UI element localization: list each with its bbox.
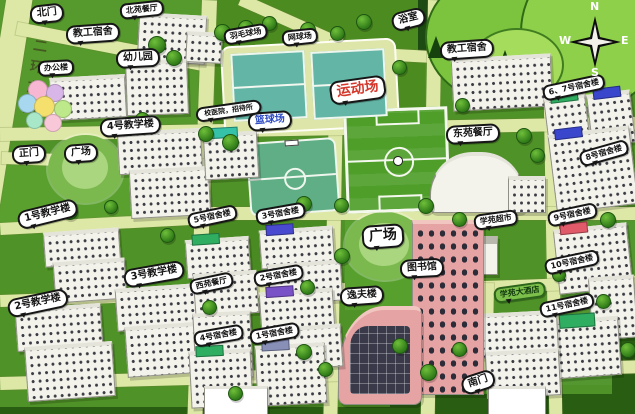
tree-icon [620, 342, 635, 358]
compass-icon: N W E S [563, 4, 627, 80]
tree-icon [300, 280, 315, 295]
label-plaza-left: 广场 [63, 143, 98, 164]
tree-icon [330, 26, 345, 41]
tree-icon [228, 386, 243, 401]
label-library: 图书馆 [400, 258, 445, 279]
tree-icon [418, 198, 434, 214]
compass-s: S [591, 66, 599, 79]
label-staff-dorm-left: 教工宿舍 [65, 22, 120, 44]
label-staff-dorm-right: 教工宿舍 [439, 38, 494, 60]
tree-icon [318, 362, 333, 377]
label-east-canteen: 东苑餐厅 [446, 123, 501, 144]
compass-n: N [590, 0, 599, 13]
compass-e: E [621, 34, 629, 47]
tree-icon [334, 198, 349, 213]
label-north-gate: 北门 [29, 2, 65, 24]
tree-icon [516, 128, 532, 144]
label-kindergarten: 幼儿园 [116, 48, 161, 69]
label-main-gate: 正门 [11, 144, 46, 165]
building-dorm-8 [547, 125, 635, 213]
building-teach-2 [24, 341, 116, 402]
tree-icon [334, 248, 350, 264]
tree-icon [356, 14, 372, 30]
tree-icon [392, 338, 408, 354]
tree-icon [455, 98, 470, 113]
label-plaza-center: 广场 [361, 223, 405, 249]
tree-icon [160, 228, 175, 243]
campus-map: 二环东路 N W E S [0, 0, 635, 414]
tree-icon [420, 364, 437, 381]
tree-icon [166, 50, 182, 66]
balloons-icon [18, 80, 72, 144]
building-east-canteen-annex [508, 176, 546, 213]
tree-icon [198, 126, 214, 142]
label-yifu-building: 逸夫楼 [339, 285, 384, 307]
building-yifu-glass [350, 326, 410, 394]
label-office-building: 办公楼 [38, 59, 75, 77]
building-dorm-11 [552, 316, 622, 379]
tree-icon [104, 200, 118, 214]
tree-icon [202, 300, 217, 315]
tree-icon [296, 344, 312, 360]
tree-icon [600, 212, 616, 228]
compass-w: W [559, 34, 571, 47]
tree-icon [452, 342, 467, 357]
south-gate-structure [488, 386, 546, 414]
tree-icon [452, 212, 467, 227]
tree-icon [596, 294, 611, 309]
tree-icon [222, 134, 239, 151]
tree-icon [530, 148, 545, 163]
tree-icon [392, 60, 407, 75]
